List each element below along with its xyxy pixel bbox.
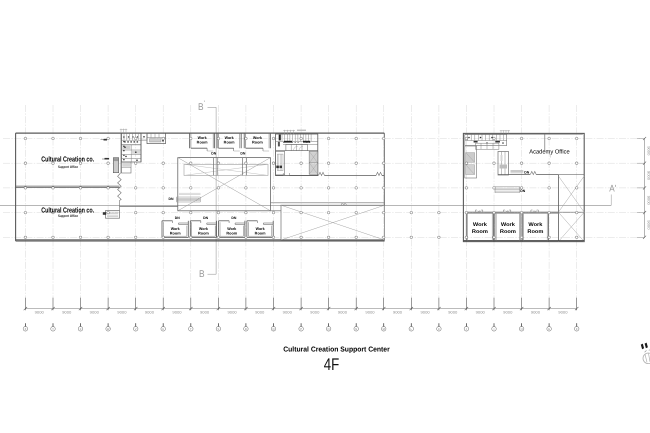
svg-text:O: O [328,328,330,331]
svg-text:DN: DN [203,216,209,220]
svg-text:P: P [300,328,302,331]
svg-text:X: X [80,328,82,331]
svg-text:9000: 9000 [62,310,71,314]
svg-text:9000: 9000 [448,310,457,314]
svg-text:H: H [521,328,523,331]
svg-text:A': A' [609,183,616,194]
svg-text:Support Office: Support Office [58,214,78,218]
svg-text:9000: 9000 [255,310,264,314]
svg-text:K: K [438,328,440,331]
svg-text:4F: 4F [324,355,340,374]
svg-text:Room: Room [472,229,488,235]
svg-text:DN: DN [520,189,526,193]
svg-text:9000: 9000 [421,310,430,314]
svg-text:9000: 9000 [647,146,650,155]
svg-text:Q: Q [272,328,274,331]
svg-text:Work: Work [171,227,181,231]
svg-text:Room: Room [198,231,209,235]
svg-text:9000: 9000 [338,310,347,314]
svg-text:Cultural Creation Support Cent: Cultural Creation Support Center [283,346,390,354]
svg-text:9000: 9000 [200,310,209,314]
svg-text:Room: Room [224,141,235,145]
svg-text:9000: 9000 [90,310,99,314]
svg-text:Work: Work [199,227,209,231]
svg-text:9000: 9000 [476,310,485,314]
svg-text:9000: 9000 [283,310,292,314]
svg-text:9000: 9000 [531,310,540,314]
svg-text:Y: Y [52,328,54,331]
svg-text:Room: Room [252,141,263,145]
svg-text:Room: Room [226,231,237,235]
svg-text:DN: DN [524,170,530,174]
svg-text:Work: Work [225,136,235,140]
svg-text:Room: Room [255,231,266,235]
svg-text:9000: 9000 [647,196,650,205]
svg-text:': ' [204,100,205,107]
svg-text:R: R [245,328,247,331]
svg-text:9000: 9000 [393,310,402,314]
svg-text:9000: 9000 [503,310,512,314]
svg-text:9000: 9000 [172,310,181,314]
svg-text:9000: 9000 [647,220,650,229]
svg-text:G: G [548,328,550,331]
svg-text:Room: Room [170,231,181,235]
svg-text:Work: Work [528,222,542,228]
svg-text:Work: Work [501,222,515,228]
svg-text:Support Office: Support Office [58,165,78,169]
svg-text:Work: Work [256,227,266,231]
svg-text:Work: Work [473,222,487,228]
svg-text:9000: 9000 [35,310,44,314]
svg-text:9000: 9000 [228,310,237,314]
svg-text:9000: 9000 [365,310,374,314]
svg-text:Cultural Creation co.: Cultural Creation co. [41,155,94,164]
svg-text:9000: 9000 [647,171,650,180]
svg-text:B: B [199,269,205,280]
svg-text:Room: Room [500,229,516,235]
svg-text:V: V [135,328,137,331]
svg-text:N: N [355,328,357,331]
svg-text:DN: DN [169,197,175,201]
svg-text:Room: Room [197,141,208,145]
svg-text:9000: 9000 [310,310,319,314]
svg-text:DN: DN [240,152,246,156]
svg-text:Room: Room [527,229,543,235]
svg-text:9000: 9000 [117,310,126,314]
svg-text:9000: 9000 [145,310,154,314]
svg-text:S: S [218,328,220,331]
svg-text:DN: DN [231,216,237,220]
svg-text:9000: 9000 [558,310,567,314]
svg-text:Work: Work [227,227,237,231]
svg-text:U: U [162,328,164,331]
svg-text:DN: DN [211,152,217,156]
svg-text:Work: Work [253,136,263,140]
svg-text:Work: Work [198,136,208,140]
svg-text:DN: DN [175,216,181,220]
